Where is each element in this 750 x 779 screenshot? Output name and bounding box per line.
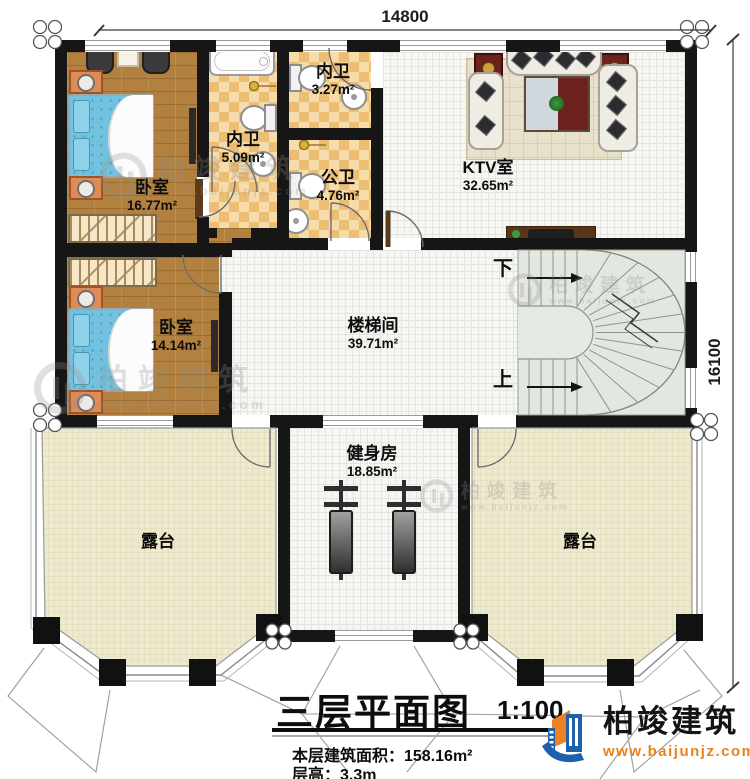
room-label-terrace-left: 露台 xyxy=(141,532,175,552)
room-area: 5.09m² xyxy=(222,150,265,166)
brand-logo: 柏竣建筑 www.baijunjz.com xyxy=(540,706,750,770)
room-label-gym: 健身房 18.85m² xyxy=(347,444,398,481)
terrace-left-outline xyxy=(31,428,281,681)
brand-name: 柏竣建筑 xyxy=(603,706,750,739)
room-label-ktv: KTV室 32.65m² xyxy=(463,158,514,195)
room-name: 露台 xyxy=(563,532,597,552)
room-area: 4.76m² xyxy=(317,188,360,204)
room-name: 卧室 xyxy=(127,178,177,198)
room-label-bedroom1: 卧室 16.77m² xyxy=(127,178,177,215)
room-name: 内卫 xyxy=(312,62,355,82)
staircase xyxy=(518,250,685,415)
stairs-up-label: 上 xyxy=(493,363,513,392)
floor-height-text: 层高：3.3m xyxy=(292,761,376,779)
room-label-bedroom2: 卧室 14.14m² xyxy=(151,318,201,355)
room-area: 16.77m² xyxy=(127,198,177,214)
room-label-terrace-right: 露台 xyxy=(563,532,597,552)
floor-plan-canvas: 柏竣建筑 www.baijunjz.com 柏竣建筑 www.baijunjz.… xyxy=(0,0,750,779)
room-name: 卧室 xyxy=(151,318,201,338)
room-label-bath-public: 公卫 4.76m² xyxy=(317,168,360,205)
room-area: 18.85m² xyxy=(347,464,398,480)
dimension-right: 16100 xyxy=(705,320,725,404)
room-name: 公卫 xyxy=(317,168,360,188)
door-swing xyxy=(183,48,516,467)
room-name: 健身房 xyxy=(347,444,398,464)
room-label-stair-hall: 楼梯间 39.71m² xyxy=(348,316,399,353)
stairs-down-label: 下 xyxy=(493,252,513,281)
room-name: 内卫 xyxy=(222,130,265,150)
room-area: 32.65m² xyxy=(463,178,514,194)
dimension-top: 14800 xyxy=(98,7,712,27)
terrace-right-outline xyxy=(464,428,702,682)
room-area: 14.14m² xyxy=(151,338,201,354)
brand-url: www.baijunjz.com xyxy=(603,743,750,760)
title-underline-thin xyxy=(272,735,558,737)
room-name: KTV室 xyxy=(463,158,514,178)
title-underline-thick xyxy=(272,728,558,732)
room-area: 39.71m² xyxy=(348,336,399,352)
plan-linework xyxy=(0,0,750,779)
room-area: 3.27m² xyxy=(312,82,355,98)
room-name: 楼梯间 xyxy=(348,316,399,336)
brand-logo-icon xyxy=(540,706,596,770)
room-label-bath-small: 内卫 3.27m² xyxy=(312,62,355,99)
room-label-bath-master: 内卫 5.09m² xyxy=(222,130,265,167)
room-name: 露台 xyxy=(141,532,175,552)
